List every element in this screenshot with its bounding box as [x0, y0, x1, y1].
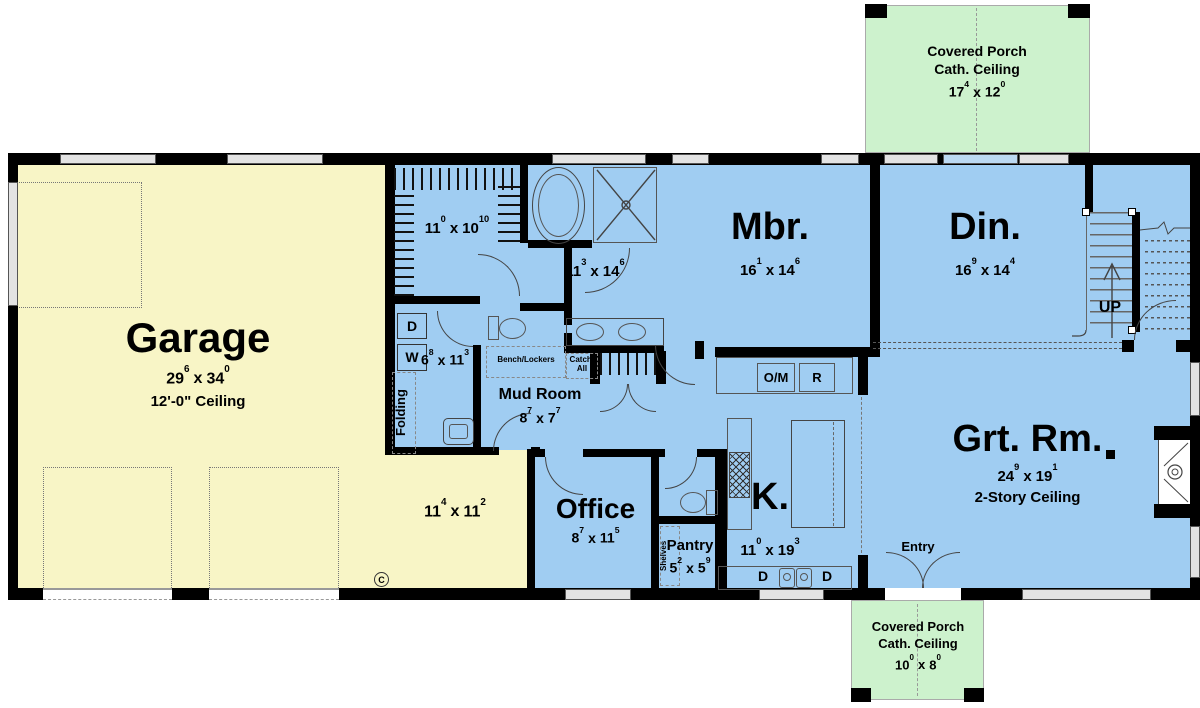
bench-lockers-label: Bench/Lockers [486, 356, 566, 364]
wall-segment [659, 516, 719, 524]
sink-bowl [576, 323, 604, 341]
fireplace-box [1158, 438, 1190, 506]
window [552, 154, 646, 164]
closet-hanger-hatch [394, 192, 414, 296]
wall-segment [520, 303, 572, 311]
folding-label: Folding [394, 376, 414, 450]
porch-post [964, 688, 984, 702]
window [759, 589, 824, 600]
closet-dimensions: 110x1010 [398, 220, 516, 237]
dishwasher-right-label: D [814, 569, 840, 584]
mudroom-dimensions: 87x77 [480, 410, 600, 425]
great-room-title: Grt. Rm. [925, 420, 1130, 460]
toilet-tank [488, 316, 499, 340]
window [672, 154, 709, 164]
window [8, 182, 18, 306]
wall-segment [1132, 212, 1140, 332]
garage-door-opening [209, 588, 339, 600]
two-story-open-line [873, 348, 1122, 349]
garage-door-dashed-panel [209, 467, 339, 592]
dining-dimensions: 169x144 [882, 262, 1088, 279]
wall-segment [520, 165, 528, 243]
garage-bay-dimensions: 114x112 [390, 503, 520, 521]
kitchen-open-line [861, 397, 862, 553]
porch-post [851, 688, 871, 702]
porch-bottom-subtitle: Cath. Ceiling [853, 637, 983, 651]
bath-dimensions: 113x146 [535, 263, 655, 280]
master-dimensions: 161x146 [665, 262, 875, 279]
sink-drain [800, 573, 808, 581]
window [821, 154, 859, 164]
oven-microwave-label: O/M [757, 363, 795, 392]
wall-segment [715, 347, 880, 357]
porch-bottom-dimensions: 100x80 [853, 658, 983, 672]
wall-segment [1176, 340, 1190, 352]
porch-post [865, 4, 887, 18]
shelves-label: Shelves [660, 526, 674, 586]
fireplace-wall [1154, 426, 1192, 440]
catch-all-label-2: All [566, 365, 598, 373]
entry-label: Entry [887, 540, 949, 554]
wall-segment [527, 455, 535, 588]
garage-attic-dashed-area [15, 182, 142, 308]
window [884, 154, 938, 164]
bathtub-inner [538, 174, 579, 237]
closet-hanger-hatch [600, 353, 656, 375]
covered-porch-top [865, 5, 1090, 153]
toilet-bowl [680, 492, 706, 513]
wall-segment [858, 555, 868, 588]
window [1190, 362, 1200, 416]
garage-title: Garage [48, 316, 348, 360]
wall-segment [583, 449, 665, 457]
laundry-sink-basin [449, 424, 468, 439]
porch-bottom-title: Covered Porch [853, 620, 983, 634]
dining-title: Din. [882, 208, 1088, 248]
two-story-open-line [873, 342, 1122, 343]
porch-top-title: Covered Porch [866, 44, 1088, 59]
stairs-up-label: UP [1088, 300, 1132, 317]
sink-drain [783, 573, 791, 581]
dishwasher-left-label: D [750, 569, 776, 584]
fireplace-wall [1154, 504, 1192, 518]
window [60, 154, 156, 164]
entry-door-opening [885, 588, 961, 600]
island-dashed-line [833, 422, 834, 526]
porch-top-subtitle: Cath. Ceiling [866, 62, 1088, 77]
toilet-bowl [499, 318, 526, 339]
floor-plan: Covered Porch Cath. Ceiling 174x120 Gara… [0, 0, 1200, 708]
wall-segment [564, 345, 664, 353]
office-title: Office [538, 494, 653, 523]
mudroom-title: Mud Room [480, 387, 600, 404]
wall-segment [858, 357, 868, 395]
porch-top-dimensions: 174x120 [866, 84, 1088, 99]
garage-dimensions: 296x340 [48, 370, 348, 388]
window [1019, 154, 1069, 164]
porch-top-centerline [976, 8, 977, 151]
garage-door-opening [43, 588, 172, 600]
window [227, 154, 323, 164]
kitchen-dimensions: 110x193 [710, 542, 830, 559]
wall-segment [385, 296, 480, 304]
sink-bowl [618, 323, 646, 341]
pantry-dimensions: 52x59 [658, 560, 722, 575]
wall-segment [695, 341, 704, 359]
toilet-tank [706, 490, 718, 515]
garage-door-dashed-panel [43, 467, 172, 592]
laundry-dimensions: 68x113 [400, 352, 490, 367]
master-title: Mbr. [665, 208, 875, 248]
wall-segment [1085, 165, 1093, 212]
great-room-dimensions: 249x191 [925, 468, 1130, 485]
great-room-ceiling-note: 2-Story Ceiling [925, 490, 1130, 506]
office-dimensions: 87x115 [538, 530, 653, 545]
wall-segment [697, 449, 727, 457]
window [565, 589, 631, 600]
window [1022, 589, 1151, 600]
wall-segment [870, 165, 880, 351]
wall-segment [1122, 340, 1134, 352]
kitchen-title: K. [740, 478, 800, 518]
fridge-label: R [799, 363, 835, 392]
c-marker: C [374, 572, 389, 587]
garage-ceiling-note: 12'-0" Ceiling [48, 394, 348, 410]
sliding-glass-door [943, 154, 1018, 164]
shower [593, 167, 657, 243]
stair-newel [1128, 208, 1136, 216]
window [1190, 526, 1200, 578]
porch-post [1068, 4, 1090, 18]
dryer-label: D [397, 313, 427, 339]
